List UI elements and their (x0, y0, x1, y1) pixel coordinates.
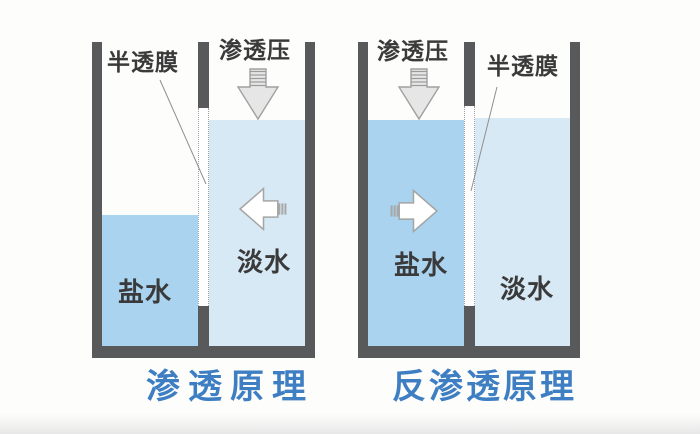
membrane-bottom-bar (464, 306, 475, 346)
semipermeable-membrane (464, 106, 475, 306)
membrane-label: 半透膜 (107, 52, 179, 75)
fresh-water-label: 淡水 (237, 250, 291, 276)
osmosis-vs-reverse-osmosis-diagram: 半透膜 渗透压 盐水 淡水 渗透原理 (0, 0, 700, 434)
fresh-water-fill (475, 118, 570, 346)
container-right-wall (570, 42, 580, 358)
salt-water-label: 盐水 (118, 280, 172, 306)
water-flow-left-arrow-icon (238, 185, 288, 233)
container-left-wall (358, 42, 368, 358)
osmotic-pressure-label: 渗透压 (219, 40, 291, 63)
membrane-top-bar (198, 42, 209, 108)
osmotic-pressure-label: 渗透压 (377, 41, 449, 64)
water-flow-right-arrow-icon (389, 187, 439, 235)
container-bottom-wall (358, 346, 580, 358)
salt-water-label: 盐水 (394, 253, 448, 279)
page-bottom-shadow (0, 414, 700, 434)
fresh-water-fill (209, 120, 305, 346)
container-left-wall (92, 42, 102, 358)
semipermeable-membrane (198, 108, 209, 306)
membrane-label: 半透膜 (487, 56, 559, 79)
osmotic-pressure-down-arrow-icon (232, 66, 284, 122)
reverse-osmosis-caption: 反渗透原理 (358, 370, 611, 404)
osmotic-pressure-down-arrow-icon (393, 66, 445, 122)
membrane-bottom-bar (198, 306, 209, 346)
membrane-top-bar (464, 42, 475, 106)
osmosis-caption: 渗透原理 (92, 370, 368, 404)
container-bottom-wall (92, 346, 315, 358)
fresh-water-label: 淡水 (500, 277, 554, 303)
container-right-wall (305, 42, 315, 358)
